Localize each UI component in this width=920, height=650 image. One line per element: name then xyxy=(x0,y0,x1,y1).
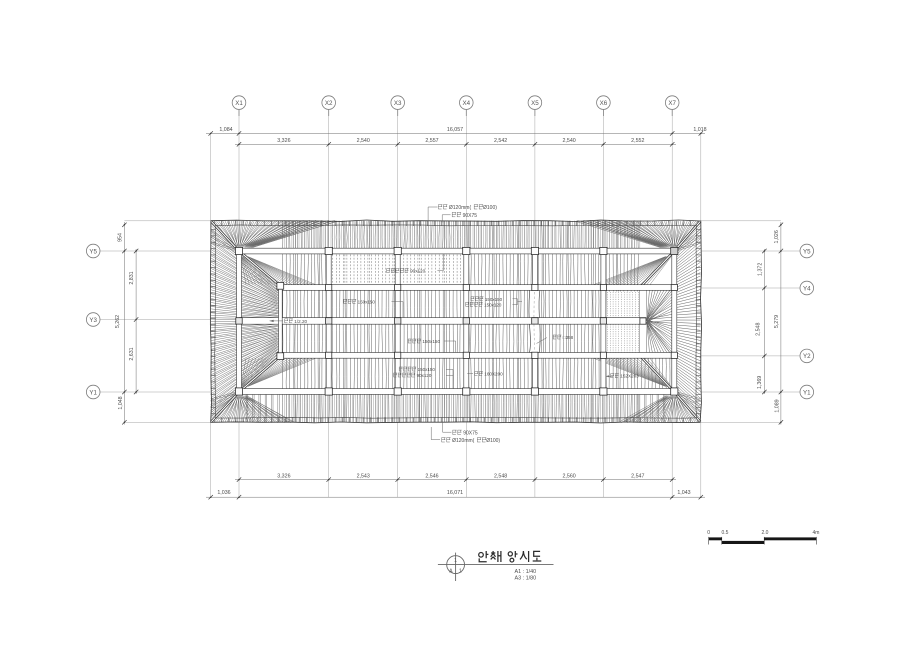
svg-text:1,089: 1,089 xyxy=(774,399,780,412)
svg-text:0.5: 0.5 xyxy=(722,530,729,536)
svg-text:2,540: 2,540 xyxy=(562,138,575,144)
svg-text:150x120: 150x120 xyxy=(484,302,502,307)
svg-text:Ø120mm(: Ø120mm( xyxy=(449,205,472,211)
svg-text:A3 : 1/80: A3 : 1/80 xyxy=(515,575,537,581)
svg-text:2,547: 2,547 xyxy=(631,473,644,479)
svg-text:1,084: 1,084 xyxy=(219,127,232,133)
svg-text:Y4: Y4 xyxy=(803,285,811,292)
svg-text:X4: X4 xyxy=(463,100,471,107)
svg-text:X7: X7 xyxy=(668,100,676,107)
svg-text:1,026: 1,026 xyxy=(774,230,780,243)
svg-text:90x120: 90x120 xyxy=(410,269,426,274)
svg-text:Y5: Y5 xyxy=(89,248,97,255)
svg-text:0: 0 xyxy=(707,530,710,536)
svg-text:150x150: 150x150 xyxy=(358,299,376,304)
svg-text:2,831: 2,831 xyxy=(129,271,135,284)
svg-text:Ø100): Ø100) xyxy=(483,205,497,211)
svg-text:2,631: 2,631 xyxy=(129,347,135,360)
svg-text:90X75: 90X75 xyxy=(463,431,478,437)
svg-text:X6: X6 xyxy=(600,100,608,107)
svg-text:954: 954 xyxy=(118,233,124,242)
svg-text:Y5: Y5 xyxy=(803,248,811,255)
svg-text:2,552: 2,552 xyxy=(631,138,644,144)
svg-text:3,326: 3,326 xyxy=(277,473,290,479)
svg-text:Ø100): Ø100) xyxy=(486,438,500,444)
svg-text:X2: X2 xyxy=(325,100,333,107)
svg-text:4m: 4m xyxy=(813,530,820,536)
svg-text:1: 1 xyxy=(454,558,457,564)
svg-text:3,326: 3,326 xyxy=(277,138,290,144)
svg-text:1,036: 1,036 xyxy=(217,490,230,496)
svg-text:2,560: 2,560 xyxy=(562,473,575,479)
svg-text:2,557: 2,557 xyxy=(425,138,438,144)
svg-text:16,071: 16,071 xyxy=(447,490,463,496)
svg-text:□358: □358 xyxy=(563,335,574,340)
svg-text:X1: X1 xyxy=(235,100,243,107)
svg-text:1: 1 xyxy=(459,569,462,575)
svg-text:2,543: 2,543 xyxy=(357,473,370,479)
svg-text:1,018: 1,018 xyxy=(693,127,706,133)
svg-text:2,542: 2,542 xyxy=(494,138,507,144)
svg-text:150x150: 150x150 xyxy=(422,339,440,344)
svg-text:16,057: 16,057 xyxy=(447,127,463,133)
svg-text:2,548: 2,548 xyxy=(494,473,507,479)
svg-text:Y1: Y1 xyxy=(803,389,811,396)
svg-text:1,372: 1,372 xyxy=(757,263,763,276)
svg-text:Y1: Y1 xyxy=(89,389,97,396)
svg-text:1,048: 1,048 xyxy=(118,396,124,409)
svg-text:2,546: 2,546 xyxy=(425,473,438,479)
svg-text:1/2.20: 1/2.20 xyxy=(294,319,307,324)
svg-text:2,548: 2,548 xyxy=(756,323,762,336)
svg-text:2,540: 2,540 xyxy=(357,138,370,144)
svg-text:Y3: Y3 xyxy=(89,317,97,324)
svg-text:2.0: 2.0 xyxy=(762,530,769,536)
svg-text:150x150: 150x150 xyxy=(418,367,436,372)
svg-text:A1 : 1/40: A1 : 1/40 xyxy=(515,569,537,575)
svg-text:152X203: 152X203 xyxy=(620,374,639,379)
svg-text:90X75: 90X75 xyxy=(463,213,478,219)
svg-text:5,279: 5,279 xyxy=(774,315,780,328)
svg-text:90x120: 90x120 xyxy=(417,373,432,378)
svg-text:160X200: 160X200 xyxy=(484,372,503,377)
svg-text:X5: X5 xyxy=(531,100,539,107)
svg-text:A: A xyxy=(449,569,453,575)
svg-text:Y2: Y2 xyxy=(803,353,811,360)
svg-text:1,043: 1,043 xyxy=(677,490,690,496)
svg-text:150x150: 150x150 xyxy=(485,297,503,302)
svg-text:1,369: 1,369 xyxy=(757,376,763,389)
svg-text:5,262: 5,262 xyxy=(115,315,121,328)
svg-text:Ø120mm(: Ø120mm( xyxy=(452,438,475,444)
svg-text:X3: X3 xyxy=(394,100,402,107)
